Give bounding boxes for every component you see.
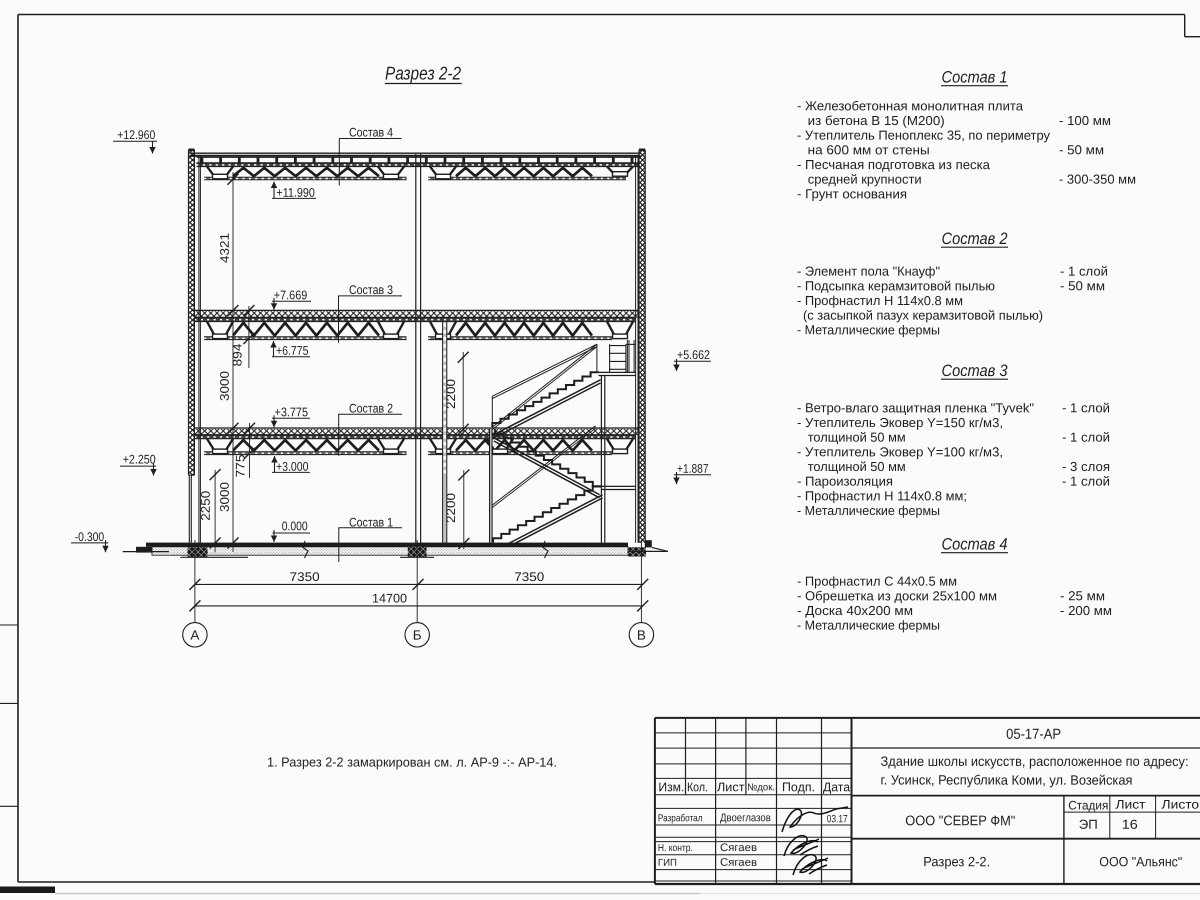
- svg-text:7350: 7350: [290, 570, 320, 584]
- svg-text:- 50 мм: - 50 мм: [1059, 142, 1104, 157]
- svg-text:Разрез 2-2: Разрез 2-2: [385, 62, 462, 83]
- svg-text:Дата: Дата: [823, 780, 850, 794]
- svg-text:Состав 4: Состав 4: [941, 535, 1007, 553]
- svg-text:Здание школы искусств, располо: Здание школы искусств, расположенное по …: [880, 754, 1188, 769]
- svg-text:- Утеплитель Эковер Y=150 кг/м: - Утеплитель Эковер Y=150 кг/м3,: [797, 415, 1003, 430]
- svg-text:+2.250: +2.250: [123, 453, 156, 467]
- svg-text:3000: 3000: [218, 482, 232, 512]
- svg-text:толщиной 50 мм: толщиной 50 мм: [808, 459, 906, 474]
- svg-text:- 200 мм: - 200 мм: [1060, 603, 1112, 618]
- svg-text:- Утеплитель Пеноплекс 35, по: - Утеплитель Пеноплекс 35, по периметру: [797, 128, 1050, 143]
- svg-text:- 25 мм: - 25 мм: [1060, 588, 1105, 603]
- svg-text:г. Усинск, Республика Коми, ул: г. Усинск, Республика Коми, ул. Возейска…: [880, 773, 1132, 788]
- svg-text:+3.775: +3.775: [274, 405, 308, 419]
- svg-text:-0.300: -0.300: [75, 530, 105, 544]
- svg-text:Состав 2: Состав 2: [349, 401, 393, 415]
- svg-text:14700: 14700: [372, 591, 407, 605]
- svg-text:Сягаев: Сягаев: [720, 857, 757, 869]
- svg-text:ГИП: ГИП: [658, 858, 677, 869]
- svg-text:- Металлические фермы: - Металлические фермы: [797, 503, 940, 518]
- svg-text:ООО "Альянс": ООО "Альянс": [1099, 854, 1182, 869]
- svg-text:Состав 1: Состав 1: [941, 68, 1007, 86]
- svg-text:- 50 мм: - 50 мм: [1060, 278, 1105, 293]
- svg-text:ЭП: ЭП: [1079, 817, 1098, 832]
- svg-text:- Металлические фермы: - Металлические фермы: [797, 618, 940, 633]
- svg-text:Лист: Лист: [717, 780, 745, 794]
- svg-text:- Элемент пола "Кнауф": - Элемент пола "Кнауф": [797, 264, 940, 279]
- svg-text:+7.669: +7.669: [274, 288, 308, 302]
- svg-text:Н. контр.: Н. контр.: [658, 843, 693, 854]
- svg-text:Состав 3: Состав 3: [349, 283, 393, 297]
- svg-text:- 1 слой: - 1 слой: [1062, 430, 1110, 445]
- svg-text:толщиной 50 мм: толщиной 50 мм: [808, 430, 906, 445]
- svg-text:Состав 2: Состав 2: [941, 230, 1007, 248]
- svg-text:В: В: [637, 628, 646, 643]
- svg-text:на 600 мм от стены: на 600 мм от стены: [808, 142, 930, 157]
- svg-text:- Железобетонная монолитная п: - Железобетонная монолитная плита: [797, 98, 1024, 113]
- svg-text:05-17-АР: 05-17-АР: [1006, 727, 1061, 743]
- svg-text:03.17: 03.17: [827, 813, 848, 825]
- svg-text:- 100 мм: - 100 мм: [1059, 113, 1111, 128]
- svg-text:4321: 4321: [218, 233, 232, 263]
- svg-text:16: 16: [1122, 817, 1138, 832]
- svg-text:775: 775: [233, 454, 247, 477]
- svg-text:Листов: Листов: [1161, 798, 1200, 812]
- svg-text:+3.000: +3.000: [276, 460, 309, 474]
- svg-text:+5.662: +5.662: [677, 348, 710, 362]
- svg-text:+12.960: +12.960: [117, 128, 155, 142]
- svg-text:0.000: 0.000: [282, 519, 308, 533]
- svg-text:Состав 3: Состав 3: [941, 362, 1008, 380]
- svg-text:№док.: №док.: [747, 782, 775, 793]
- svg-text:- Пароизоляция: - Пароизоляция: [797, 474, 893, 489]
- svg-text:Сягаев: Сягаев: [720, 842, 757, 854]
- svg-text:+6.775: +6.775: [276, 344, 309, 358]
- svg-text:2200: 2200: [444, 493, 458, 523]
- svg-text:Подп.: Подп.: [782, 780, 815, 794]
- svg-text:- 1 слой: - 1 слой: [1062, 400, 1110, 415]
- svg-text:Кол.: Кол.: [687, 780, 708, 794]
- svg-text:- Профнастил С 44х0.5 мм: - Профнастил С 44х0.5 мм: [797, 574, 957, 589]
- svg-text:Лист: Лист: [1115, 798, 1145, 812]
- svg-text:(с засыпкой пазух керамзитовой: (с засыпкой пазух керамзитовой пылью): [803, 308, 1043, 323]
- svg-text:- 3 слоя: - 3 слоя: [1062, 459, 1110, 474]
- svg-text:7350: 7350: [514, 570, 544, 584]
- svg-text:из бетона В 15 (М200): из бетона В 15 (М200): [808, 113, 945, 128]
- svg-text:- Ветро-влаго защитная пленка: - Ветро-влаго защитная пленка "Tyvek": [797, 400, 1034, 415]
- svg-text:Двоеглазов: Двоеглазов: [720, 812, 771, 824]
- svg-text:А: А: [190, 628, 199, 643]
- svg-text:+1.887: +1.887: [677, 462, 709, 476]
- svg-text:3000: 3000: [218, 371, 232, 401]
- svg-text:Изм.: Изм.: [658, 780, 684, 794]
- svg-text:Состав 4: Состав 4: [349, 125, 393, 139]
- svg-text:- Металлические фермы: - Металлические фермы: [797, 322, 940, 337]
- svg-text:- Обрешетка из доски 25х100 мм: - Обрешетка из доски 25х100 мм: [797, 588, 997, 603]
- svg-text:- 300-350 мм: - 300-350 мм: [1059, 172, 1136, 187]
- svg-text:2200: 2200: [444, 379, 458, 409]
- svg-text:- Профнастил Н 114х0.8 мм: - Профнастил Н 114х0.8 мм: [797, 293, 963, 308]
- svg-text:ООО "СЕВЕР ФМ": ООО "СЕВЕР ФМ": [905, 812, 1015, 828]
- svg-text:- Утеплитель Эковер Y=100 кг/м: - Утеплитель Эковер Y=100 кг/м3,: [797, 444, 1003, 459]
- svg-text:2250: 2250: [199, 491, 213, 521]
- svg-text:894: 894: [230, 343, 244, 366]
- svg-text:- Подсыпка керамзитовой пылью: - Подсыпка керамзитовой пылью: [797, 278, 995, 293]
- svg-text:- Песчаная подготовка из песка: - Песчаная подготовка из песка: [797, 157, 991, 172]
- svg-text:+11.990: +11.990: [276, 186, 315, 200]
- svg-text:- 1 слой: - 1 слой: [1060, 264, 1108, 279]
- svg-text:Б: Б: [413, 628, 422, 643]
- svg-text:Стадия: Стадия: [1068, 798, 1108, 812]
- svg-text:- Доска 40х200 мм: - Доска 40х200 мм: [797, 603, 913, 618]
- svg-text:- Профнастил Н 114х0.8 мм;: - Профнастил Н 114х0.8 мм;: [797, 488, 967, 503]
- svg-text:средней крупности: средней крупности: [808, 172, 922, 187]
- svg-text:Разработал: Разработал: [658, 813, 703, 824]
- svg-text:Разрез 2-2.: Разрез 2-2.: [923, 854, 990, 869]
- svg-text:1. Разрез 2-2 замаркирован см.: 1. Разрез 2-2 замаркирован см. л. АР-9 -…: [267, 755, 557, 770]
- svg-text:- 1 слой: - 1 слой: [1062, 474, 1110, 489]
- svg-text:- Грунт основания: - Грунт основания: [797, 186, 907, 201]
